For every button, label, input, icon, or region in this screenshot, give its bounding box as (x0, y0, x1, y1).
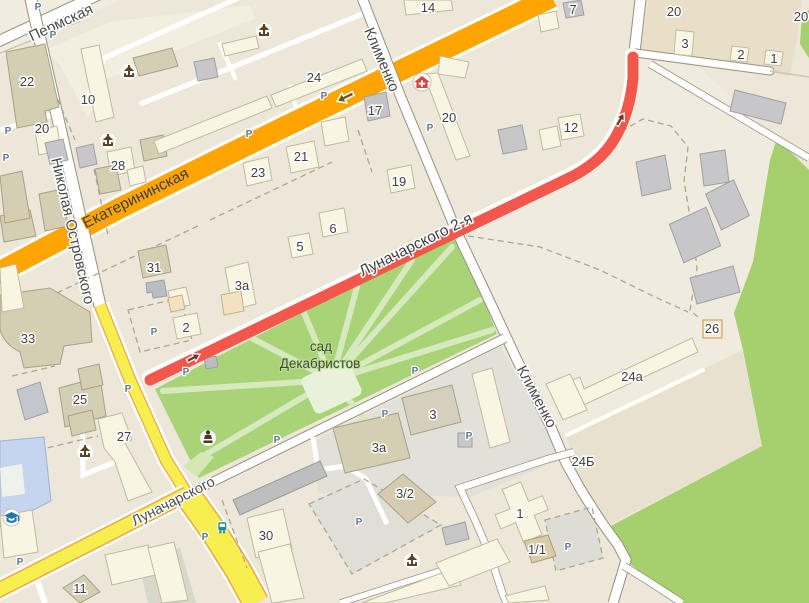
svg-text:1: 1 (770, 51, 777, 66)
svg-text:21: 21 (294, 149, 308, 164)
svg-text:10: 10 (81, 92, 95, 107)
svg-text:27: 27 (117, 429, 131, 444)
svg-text:3а: 3а (372, 440, 387, 455)
svg-text:20: 20 (442, 110, 456, 125)
svg-text:2: 2 (737, 47, 744, 62)
svg-text:12: 12 (564, 120, 578, 135)
svg-text:19: 19 (392, 174, 406, 189)
svg-text:1: 1 (516, 506, 523, 521)
svg-text:3а: 3а (235, 278, 250, 293)
svg-text:P: P (412, 366, 419, 377)
svg-text:3: 3 (681, 36, 688, 51)
svg-text:P: P (321, 91, 328, 102)
svg-text:24а: 24а (621, 369, 643, 384)
svg-text:28: 28 (111, 158, 125, 173)
svg-text:P: P (246, 129, 253, 140)
svg-text:5: 5 (296, 239, 303, 254)
svg-text:20: 20 (35, 121, 49, 136)
svg-text:31: 31 (147, 260, 161, 275)
svg-text:14: 14 (421, 0, 435, 15)
svg-text:17: 17 (368, 103, 382, 118)
svg-text:3: 3 (429, 407, 436, 422)
svg-text:1/1: 1/1 (528, 542, 546, 557)
svg-text:11: 11 (73, 581, 87, 596)
svg-text:P: P (5, 126, 12, 137)
svg-text:26: 26 (705, 321, 719, 336)
svg-text:20: 20 (667, 4, 681, 19)
svg-text:6: 6 (329, 221, 336, 236)
svg-text:20: 20 (794, 9, 808, 24)
svg-text:P: P (565, 542, 572, 553)
svg-text:P: P (125, 384, 132, 395)
svg-text:2: 2 (182, 320, 189, 335)
svg-text:P: P (183, 367, 190, 378)
svg-text:24: 24 (307, 70, 321, 85)
svg-text:3/2: 3/2 (396, 486, 414, 501)
svg-text:30: 30 (259, 528, 273, 543)
svg-text:P: P (151, 327, 158, 338)
svg-text:P: P (17, 557, 24, 568)
svg-text:7: 7 (569, 2, 576, 17)
svg-text:P: P (274, 435, 281, 446)
svg-text:P: P (382, 409, 389, 420)
svg-text:P: P (356, 517, 363, 528)
svg-text:23: 23 (251, 165, 265, 180)
svg-text:P: P (466, 431, 473, 442)
svg-text:P: P (3, 153, 10, 164)
svg-text:P: P (202, 532, 209, 543)
svg-text:P: P (35, 2, 42, 13)
svg-text:24Б: 24Б (572, 454, 595, 469)
svg-text:сад: сад (310, 339, 332, 354)
svg-text:P: P (50, 30, 57, 41)
svg-text:22: 22 (20, 74, 34, 89)
svg-text:33: 33 (21, 331, 35, 346)
svg-text:Декабристов: Декабристов (280, 356, 361, 371)
svg-text:P: P (427, 123, 434, 134)
svg-text:25: 25 (73, 392, 87, 407)
